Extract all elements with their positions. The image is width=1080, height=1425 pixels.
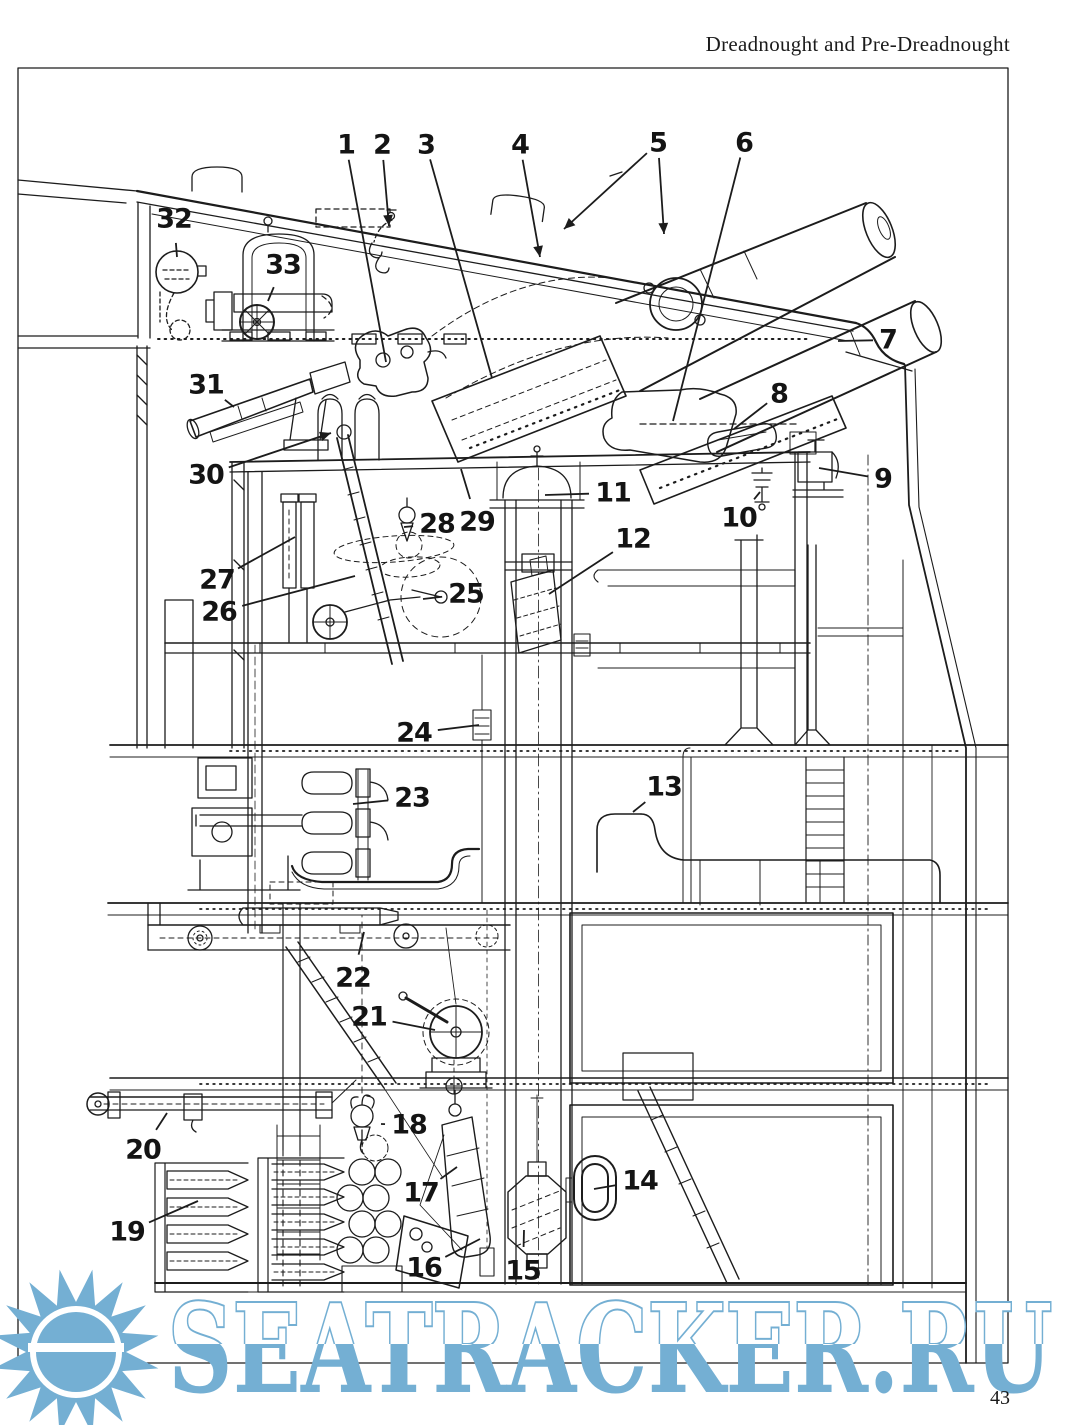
watermark: SEATRACKER.RU SEATRACKER.RU <box>0 1270 1052 1425</box>
callout-4: 4 <box>511 130 543 258</box>
callout-18: 18 <box>381 1110 427 1141</box>
svg-text:5: 5 <box>649 128 667 159</box>
svg-text:20: 20 <box>125 1135 161 1166</box>
callout-11: 11 <box>545 478 631 509</box>
svg-text:30: 30 <box>188 460 224 491</box>
callout-labels: 1234567891011121314151617181920212223242… <box>109 128 897 1287</box>
svg-text:12: 12 <box>615 524 651 555</box>
callout-5: 5 <box>564 128 668 235</box>
figure-frame <box>18 68 1008 1363</box>
svg-text:8: 8 <box>770 379 788 410</box>
book-page: Dreadnought and Pre-Dreadnought <box>0 0 1080 1425</box>
svg-text:1: 1 <box>337 130 355 161</box>
svg-text:2: 2 <box>373 130 391 161</box>
callout-33: 33 <box>265 250 301 302</box>
svg-text:10: 10 <box>721 503 757 534</box>
svg-text:11: 11 <box>595 478 631 509</box>
svg-text:22: 22 <box>335 963 371 994</box>
callout-31: 31 <box>188 370 234 408</box>
svg-text:26: 26 <box>201 597 237 628</box>
callout-27: 27 <box>199 537 295 596</box>
callout-32: 32 <box>156 204 192 258</box>
svg-text:29: 29 <box>459 507 495 538</box>
svg-text:23: 23 <box>394 783 430 814</box>
callout-12: 12 <box>549 524 651 595</box>
svg-text:13: 13 <box>646 772 682 803</box>
svg-text:3: 3 <box>417 130 435 161</box>
svg-text:25: 25 <box>448 579 484 610</box>
callout-24: 24 <box>396 718 479 749</box>
svg-text:31: 31 <box>188 370 224 401</box>
callout-28: 28 <box>404 509 455 540</box>
callout-8: 8 <box>734 379 788 430</box>
svg-text:17: 17 <box>403 1178 439 1209</box>
svg-text:7: 7 <box>879 325 897 356</box>
svg-text:33: 33 <box>265 250 301 281</box>
callout-13: 13 <box>633 772 682 813</box>
callout-6: 6 <box>673 128 753 422</box>
callout-25: 25 <box>423 579 484 610</box>
svg-text:21: 21 <box>351 1002 387 1033</box>
callout-19: 19 <box>109 1201 198 1248</box>
svg-text:18: 18 <box>391 1110 427 1141</box>
svg-text:24: 24 <box>396 718 432 749</box>
callout-10: 10 <box>721 492 760 534</box>
callout-22: 22 <box>335 932 371 994</box>
svg-text:6: 6 <box>735 128 753 159</box>
cutaway-drawing <box>18 167 1008 1363</box>
svg-text:4: 4 <box>511 130 529 161</box>
callout-14: 14 <box>594 1166 658 1197</box>
callout-29: 29 <box>459 469 495 538</box>
svg-text:14: 14 <box>622 1166 658 1197</box>
svg-text:28: 28 <box>419 509 455 540</box>
svg-text:27: 27 <box>199 565 235 596</box>
svg-text:19: 19 <box>109 1217 145 1248</box>
page-number: 43 <box>990 1387 1010 1410</box>
callout-20: 20 <box>125 1113 167 1166</box>
svg-text:32: 32 <box>156 204 192 235</box>
svg-text:9: 9 <box>874 464 892 495</box>
turret-cutaway-figure: 1234567891011121314151617181920212223242… <box>0 0 1080 1425</box>
